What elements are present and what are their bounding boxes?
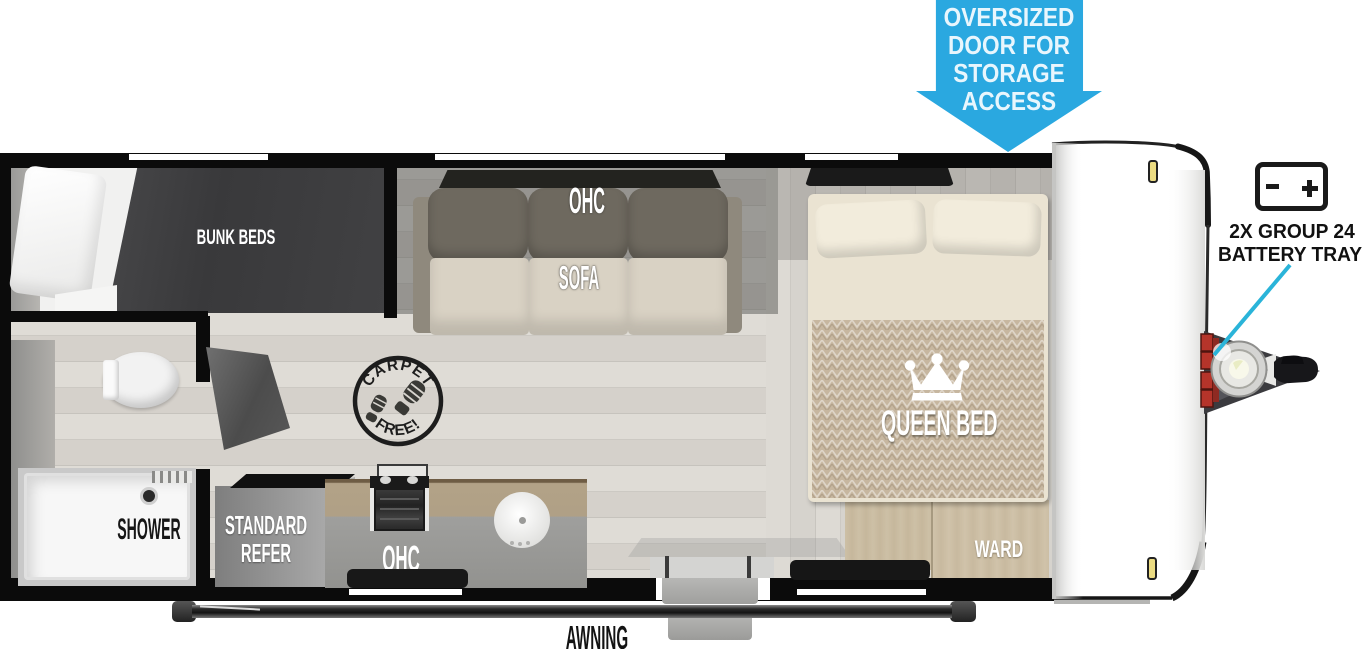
svg-text:CARPET: CARPET	[359, 357, 437, 390]
svg-text:FREE!: FREE!	[372, 415, 424, 439]
